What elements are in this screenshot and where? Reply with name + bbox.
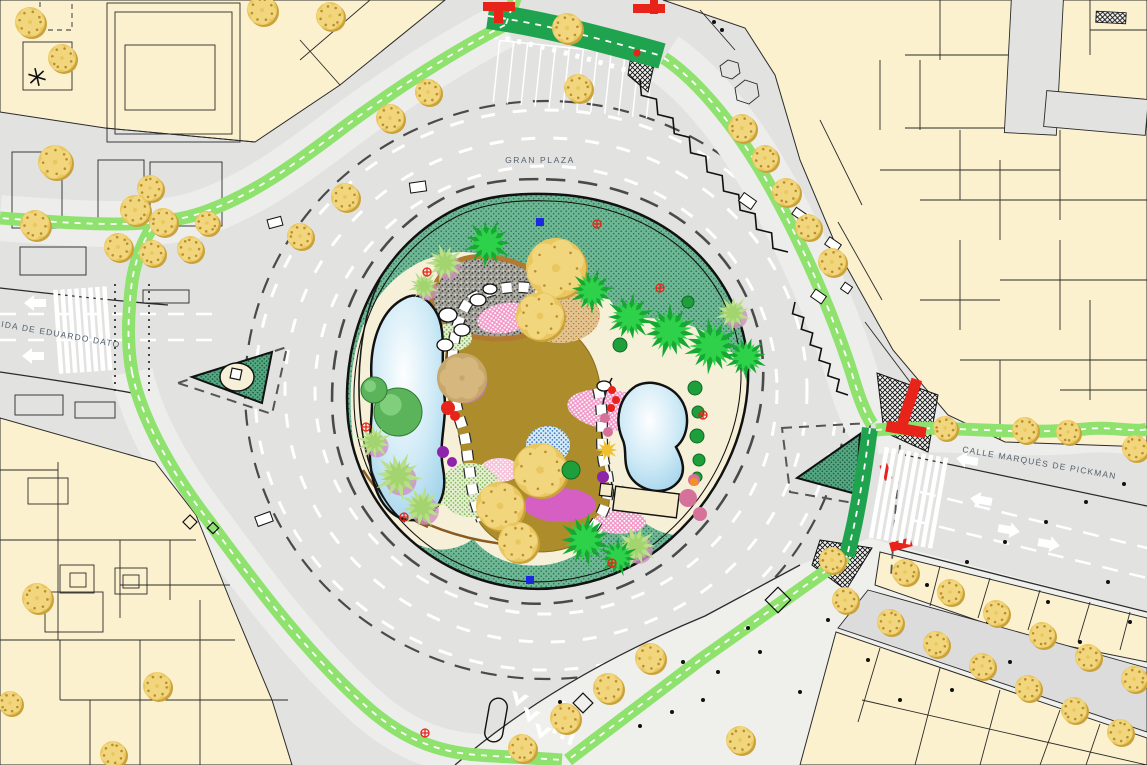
site-plan-map[interactable]: GRAN PLAZA AVENIDA DE EDUARDO DATO CALLE… [0,0,1147,765]
map-canvas[interactable]: GRAN PLAZA AVENIDA DE EDUARDO DATO CALLE… [0,0,1147,765]
label-gran-plaza: GRAN PLAZA [505,155,575,165]
pond-east [618,383,687,491]
tan-trees [437,353,488,404]
